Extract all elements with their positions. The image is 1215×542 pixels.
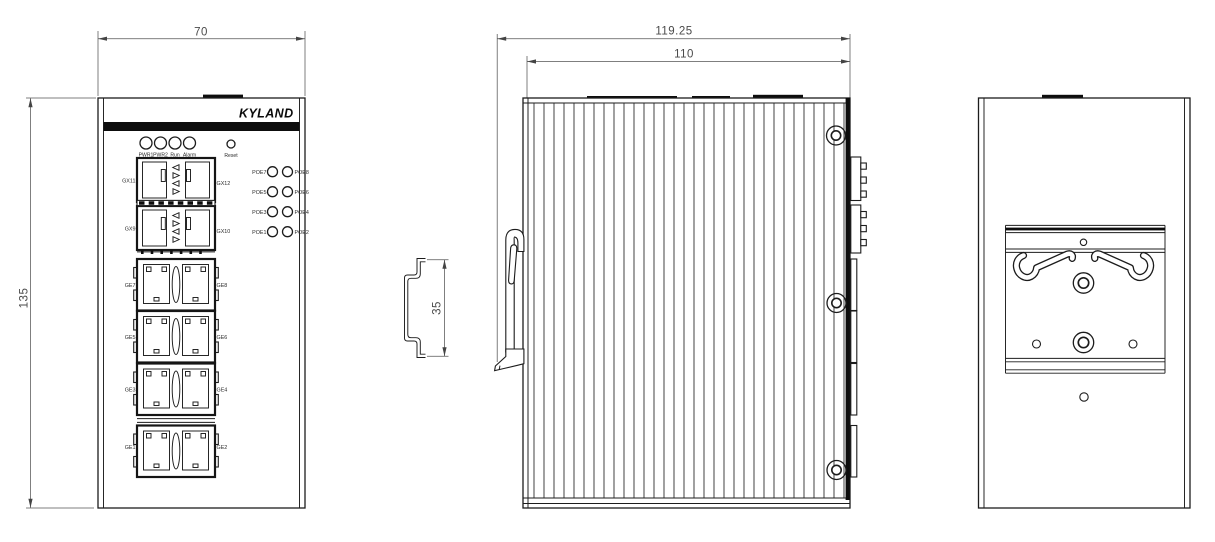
rj45-block-ge3-ge4 <box>134 364 219 416</box>
arrowhead-top <box>442 260 446 269</box>
heatsink-fins <box>534 103 844 498</box>
side-rj45-protrusions <box>851 259 857 477</box>
sfp-cage-gx9-gx10 <box>137 206 215 250</box>
front-view: 70 135 KYLAND PWR1 PWR2 Run Alarm <box>19 27 309 509</box>
led-poe7 <box>268 167 278 177</box>
brand-logo: KYLAND <box>239 107 293 121</box>
plate-hole-right <box>1129 340 1137 348</box>
plate-screw-upper <box>1073 273 1093 293</box>
port-label-gx11: GX11 <box>122 179 135 185</box>
led-pwr1 <box>140 137 152 149</box>
plate-screw-lower <box>1073 332 1093 352</box>
led-poe4 <box>283 207 293 217</box>
led-poe8 <box>283 167 293 177</box>
led-poe5 <box>268 187 278 197</box>
led-poe6 <box>283 187 293 197</box>
reset-button-area: Reset <box>224 140 238 159</box>
switch-dimension-drawing: 70 135 KYLAND PWR1 PWR2 Run Alarm <box>0 0 1215 542</box>
label-poe6: POE6 <box>295 190 309 196</box>
led-poe2 <box>283 227 293 237</box>
mechanical-drawing-canvas: 70 135 KYLAND PWR1 PWR2 Run Alarm <box>0 0 1215 542</box>
side-screw-bottom <box>827 461 846 480</box>
din-rail-inner-profile <box>408 262 426 354</box>
port-label-ge4: GE4 <box>217 388 228 394</box>
label-poe2: POE2 <box>295 230 309 236</box>
arrowhead-bottom <box>28 499 32 508</box>
side-screw-top <box>827 126 846 145</box>
front-panel-black-bar <box>104 122 300 131</box>
port-label-ge2: GE2 <box>217 445 228 451</box>
dim-din-rail-value: 35 <box>432 301 444 315</box>
led-alarm <box>184 137 196 149</box>
poe-led-grid: POE7 POE8 POE5 POE6 POE3 POE4 POE1 POE2 <box>252 167 309 237</box>
side-view: 119.25 110 <box>495 26 867 509</box>
rj45-block-ge7-ge8 <box>134 259 219 311</box>
rear-bottom-hole <box>1080 393 1088 401</box>
arrowhead-left <box>497 37 506 41</box>
dim-front-height-value: 135 <box>19 288 31 309</box>
plate-hole-left <box>1033 340 1041 348</box>
dimension-din-rail-height: 35 <box>427 260 449 357</box>
led-run <box>169 137 181 149</box>
port-label-ge1: GE1 <box>125 445 136 451</box>
dimension-front-width: 70 <box>98 27 305 97</box>
label-poe8: POE8 <box>295 170 309 176</box>
arrowhead-right <box>841 37 850 41</box>
side-screw-middle <box>827 294 846 313</box>
rear-view <box>979 95 1191 508</box>
side-sfp-protrusions <box>851 157 867 253</box>
dim-side-body-value: 110 <box>674 49 694 61</box>
side-body-outline <box>523 98 850 508</box>
label-poe4: POE4 <box>295 210 309 216</box>
port-label-ge6: GE6 <box>217 335 228 341</box>
port-label-gx10: GX10 <box>217 229 231 235</box>
rj45-block-ge1-ge2 <box>134 426 219 478</box>
led-poe1 <box>268 227 278 237</box>
label-poe1: POE1 <box>252 230 266 236</box>
din-clip-claw <box>495 349 524 371</box>
arrowhead-left <box>527 59 536 63</box>
din-spring-right <box>1095 254 1151 278</box>
sfp-cage-gx11-gx12 <box>137 158 215 202</box>
arrowhead-bottom <box>442 347 446 356</box>
reset-button <box>227 140 235 148</box>
arrowhead-right <box>296 37 305 41</box>
rear-enclosure-outline <box>979 98 1191 508</box>
label-poe5: POE5 <box>252 190 266 196</box>
label-poe7: POE7 <box>252 170 266 176</box>
arrowhead-left <box>98 37 107 41</box>
arrowhead-right <box>841 59 850 63</box>
side-front-panel-edge <box>846 98 850 500</box>
din-rail-profile-detail: 35 <box>405 259 449 358</box>
dimension-front-height: 135 <box>19 98 97 508</box>
port-label-ge7: GE7 <box>125 283 136 289</box>
dim-side-overall-value: 119.25 <box>655 26 692 38</box>
status-led-row: PWR1 PWR2 Run Alarm <box>139 137 197 159</box>
port-label-ge8: GE8 <box>217 283 228 289</box>
port-label-gx12: GX12 <box>217 181 231 187</box>
port-label-ge3: GE3 <box>125 388 136 394</box>
din-spring-left <box>1016 254 1072 278</box>
din-clip-side <box>495 229 524 370</box>
led-poe3 <box>268 207 278 217</box>
port-label-gx9: GX9 <box>125 227 136 233</box>
dimension-side-body: 110 <box>527 49 850 99</box>
arrowhead-top <box>28 98 32 107</box>
label-poe3: POE3 <box>252 210 266 216</box>
rj45-block-ge5-ge6 <box>134 311 219 363</box>
dim-front-width-value: 70 <box>194 27 208 39</box>
plate-top-rail <box>1006 228 1166 231</box>
led-pwr2 <box>155 137 167 149</box>
port-label-ge5: GE5 <box>125 335 136 341</box>
din-mount-plate <box>1006 225 1166 373</box>
reset-label: Reset <box>224 153 238 159</box>
plate-pilot-hole-top <box>1080 239 1086 245</box>
